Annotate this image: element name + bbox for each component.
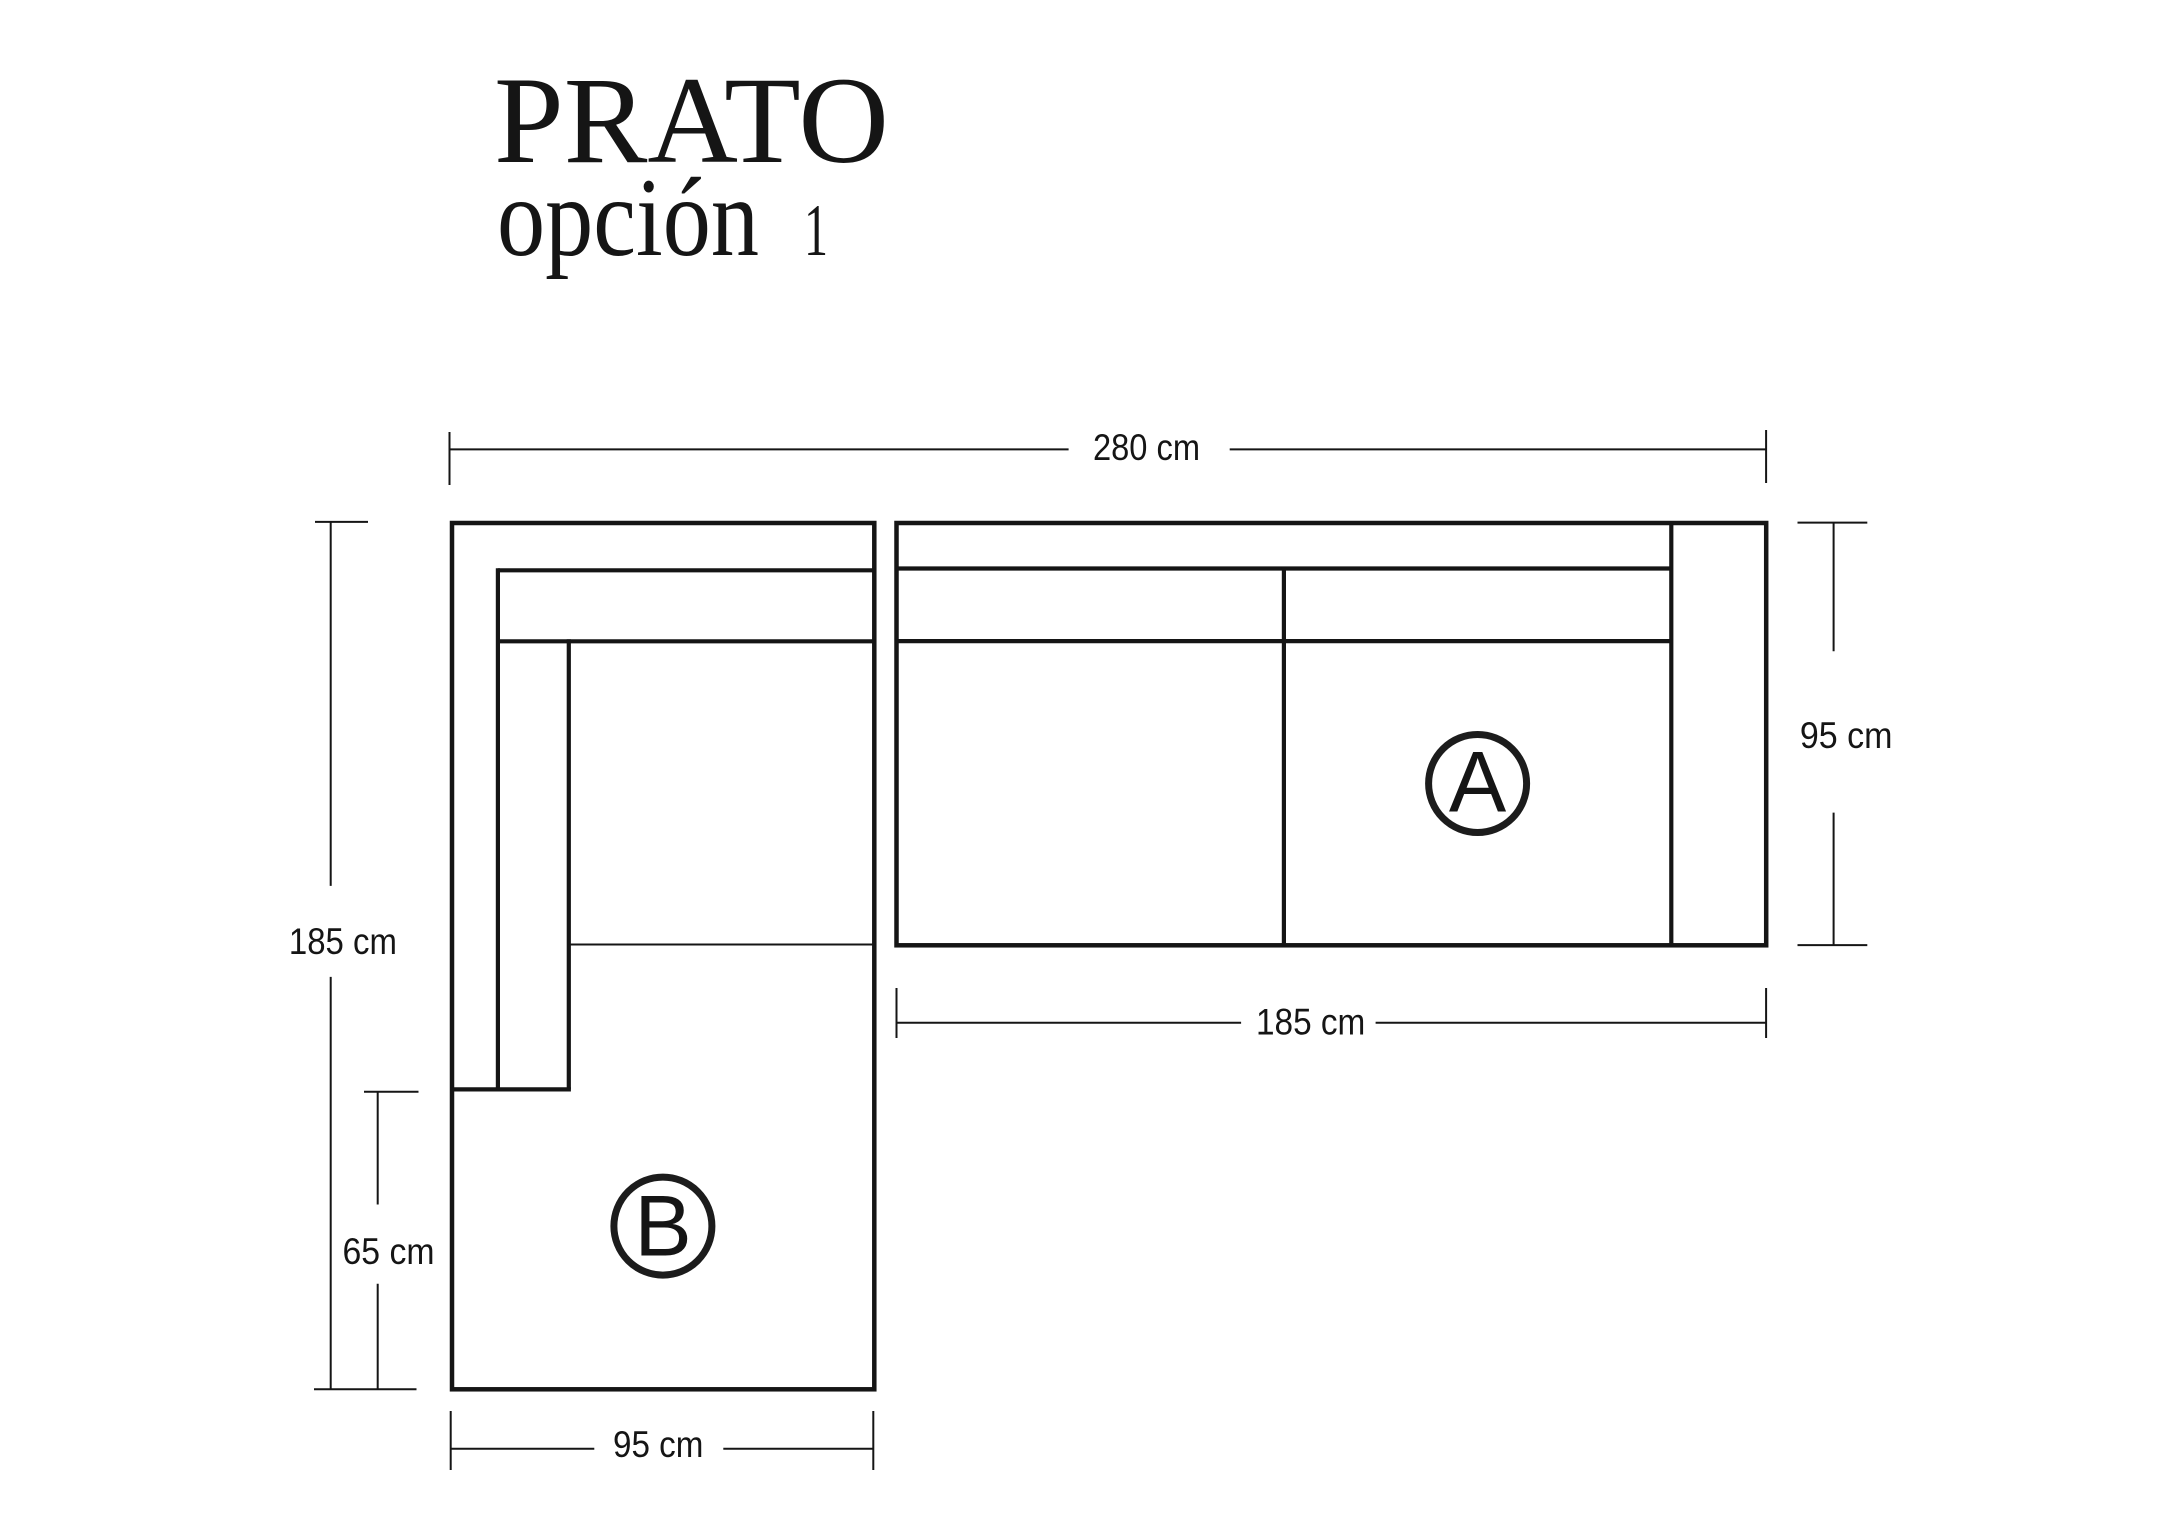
svg-text:185 cm: 185 cm	[1256, 1002, 1365, 1043]
svg-text:65 cm: 65 cm	[343, 1231, 435, 1272]
svg-text:95 cm: 95 cm	[613, 1424, 703, 1465]
svg-text:185 cm: 185 cm	[289, 921, 397, 962]
svg-text:opción: opción	[497, 156, 759, 280]
svg-text:95 cm: 95 cm	[1800, 715, 1893, 756]
svg-text:280 cm: 280 cm	[1093, 427, 1200, 468]
svg-text:B: B	[634, 1179, 691, 1275]
svg-text:A: A	[1449, 735, 1507, 831]
svg-text:1: 1	[804, 190, 828, 272]
